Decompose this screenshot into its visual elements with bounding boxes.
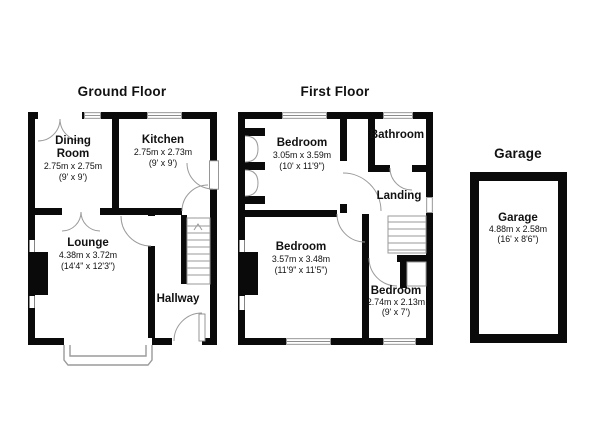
lounge-dims-metric: 4.38m x 3.72m xyxy=(59,250,117,260)
bedroom-small-label: Bedroom xyxy=(371,285,421,297)
first-floor-stairs xyxy=(388,216,426,286)
dining-room-dims-metric: 2.75m x 2.75m xyxy=(44,161,102,171)
ground-floor-stairs xyxy=(187,218,210,284)
door-leaf xyxy=(199,314,205,341)
ground-floor-plan: Ground Floor xyxy=(28,84,219,365)
door-arc xyxy=(369,258,397,286)
bedroom-rear-dims-metric: 3.05m x 3.59m xyxy=(273,150,331,160)
bedroom-front-dims-metric: 3.57m x 3.48m xyxy=(272,254,330,264)
garage-room-label: Garage xyxy=(498,212,538,224)
bedroom-rear-label: Bedroom xyxy=(277,137,327,149)
bay-window-inner xyxy=(70,345,146,356)
lounge-dims-imperial: (14'4" x 12'3") xyxy=(61,261,115,271)
garage-walls xyxy=(470,172,567,343)
bedroom-small-dims-metric: 2.74m x 2.13m xyxy=(367,297,425,307)
door-arc xyxy=(174,313,202,341)
garage-interior xyxy=(479,181,558,334)
bedroom-front-label: Bedroom xyxy=(276,241,326,253)
garage-dims-metric: 4.88m x 2.58m xyxy=(489,224,547,234)
floorplan-page: Ground Floor xyxy=(0,0,601,437)
wardrobe-door-arc xyxy=(245,183,258,196)
wall-recess xyxy=(240,240,245,252)
wardrobe-door-arc xyxy=(245,136,258,149)
bedroom-rear-dims-imperial: (10' x 11'9") xyxy=(279,161,325,171)
lounge-label: Lounge xyxy=(67,237,109,249)
door-arc xyxy=(121,216,151,246)
front-door-gap xyxy=(172,338,202,345)
wall-recess xyxy=(30,296,35,308)
door-arc xyxy=(337,214,365,242)
bedroom-small-dims-imperial: (9' x 7') xyxy=(382,307,410,317)
ground-floor-labels: Dining Room 2.75m x 2.75m (9' x 9') Kitc… xyxy=(44,134,200,305)
garage-title: Garage xyxy=(494,146,542,161)
ground-floor-title: Ground Floor xyxy=(78,84,167,99)
dining-room-label: Dining xyxy=(55,135,91,147)
hallway-label: Hallway xyxy=(157,293,200,305)
wall-recess xyxy=(240,296,245,310)
dining-room-dims-imperial: (9' x 9') xyxy=(59,172,87,182)
cupboard-outline xyxy=(407,262,426,286)
kitchen-label: Kitchen xyxy=(142,134,184,146)
landing-label: Landing xyxy=(377,190,422,202)
stair-outline xyxy=(187,218,210,284)
door-arc xyxy=(390,168,412,190)
door-arc xyxy=(81,212,100,231)
bay-window xyxy=(64,345,152,365)
garage-plan: Garage Garage 4.88m x 2.58m (16' x 8'6") xyxy=(470,146,567,343)
bedroom-front-dims-imperial: (11'9" x 11'5") xyxy=(275,265,328,275)
window xyxy=(427,198,433,213)
door-arc xyxy=(62,212,81,231)
kitchen-dims-metric: 2.75m x 2.73m xyxy=(134,147,192,157)
wardrobe-door-arc xyxy=(245,149,258,162)
dining-room-label-line2: Room xyxy=(57,148,90,160)
wardrobe-door-arc xyxy=(245,170,258,183)
door-leaf xyxy=(210,161,219,189)
wall-recess xyxy=(30,240,35,252)
french-door-gap xyxy=(38,112,82,119)
bathroom-label: Bathroom xyxy=(370,129,424,141)
garage-dims-imperial: (16' x 8'6") xyxy=(497,234,538,244)
floorplan-image: Ground Floor xyxy=(0,0,601,437)
first-floor-plan: First Floor xyxy=(238,84,433,345)
first-floor-title: First Floor xyxy=(301,84,370,99)
door-arc xyxy=(343,173,381,211)
door-arc xyxy=(182,185,208,211)
bay-window-gap xyxy=(64,338,152,345)
kitchen-dims-imperial: (9' x 9') xyxy=(149,158,177,168)
